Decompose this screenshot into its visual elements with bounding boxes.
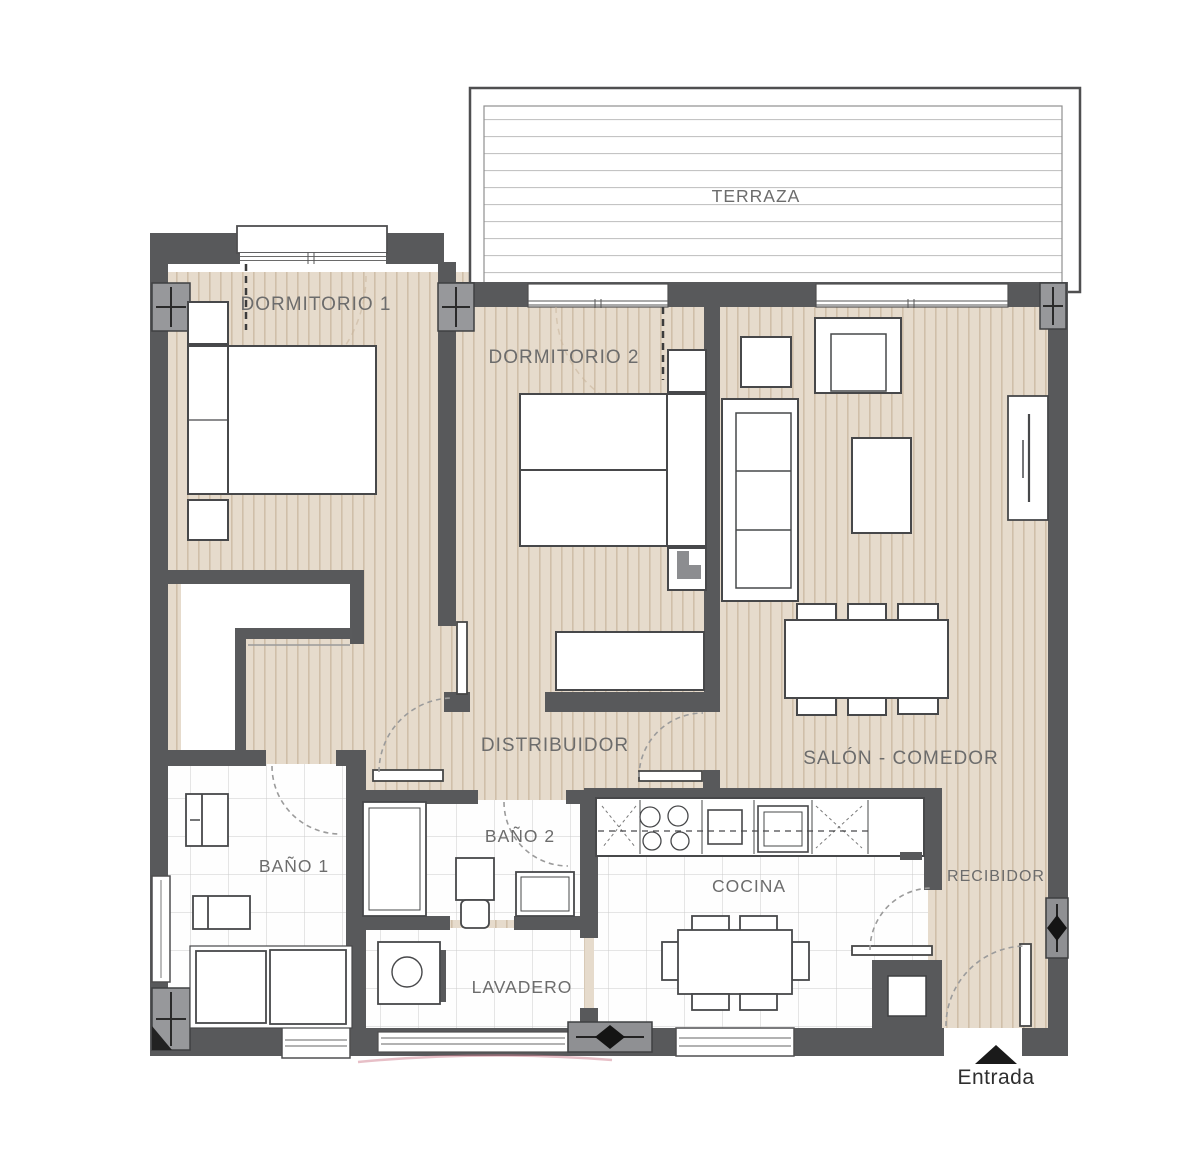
shower	[190, 946, 352, 1028]
sideboard	[556, 632, 704, 690]
room-label-dormitorio-2: DORMITORIO 2	[489, 347, 640, 368]
dining-set	[785, 604, 948, 715]
sink	[193, 896, 250, 929]
nightstand	[188, 302, 228, 344]
double-bed	[520, 394, 706, 546]
nightstand	[668, 350, 706, 392]
door-leaf-dormitorio-1	[373, 770, 443, 781]
room-label-bano-2: BAÑO 2	[485, 825, 555, 846]
window-dormitorio-1	[237, 226, 387, 264]
toilet	[456, 858, 494, 928]
duct-shaft	[888, 976, 926, 1016]
chair	[797, 698, 836, 715]
chair	[898, 698, 938, 714]
window-laundry-bottom	[378, 1032, 568, 1052]
room-label-cocina: COCINA	[712, 876, 786, 896]
room-label-lavadero: LAVADERO	[472, 977, 573, 997]
room-label-terraza: TERRAZA	[712, 186, 801, 206]
nightstand	[668, 548, 706, 590]
chair	[662, 942, 679, 980]
entrance-opening	[944, 1028, 1022, 1058]
window-bathroom-1-side	[152, 876, 170, 982]
chair	[692, 994, 729, 1010]
drain-symbol-icon	[568, 1022, 652, 1052]
kitchen-counter	[596, 798, 924, 860]
door-leaf-dormitorio-2	[457, 622, 467, 694]
toilet	[186, 794, 228, 846]
door-leaf-entrance	[1020, 944, 1031, 1026]
entrance-label: Entrada	[957, 1066, 1034, 1089]
coffee-table	[852, 438, 911, 533]
column-icon	[1040, 283, 1066, 329]
room-label-distribuidor: DISTRIBUIDOR	[481, 735, 629, 756]
side-table	[741, 337, 791, 387]
floor-plan-drawing: TERRAZA DORMITORIO 1 DORMITORIO 2 DISTRI…	[0, 0, 1200, 1151]
scan-artifact	[358, 1055, 612, 1062]
room-label-recibidor: RECIBIDOR	[947, 868, 1045, 885]
door-leaf-kitchen	[852, 946, 932, 955]
laundry-fixtures	[378, 942, 440, 1004]
kitchen-table	[678, 930, 792, 994]
chair	[898, 604, 938, 621]
oven	[758, 806, 808, 852]
sofa	[722, 399, 798, 601]
room-label-bano-1: BAÑO 1	[259, 855, 329, 876]
room-label-dormitorio-1: DORMITORIO 1	[241, 294, 392, 315]
shower	[363, 802, 426, 916]
armchair	[815, 318, 901, 393]
floor-plan-page: TERRAZA DORMITORIO 1 DORMITORIO 2 DISTRI…	[0, 0, 1200, 1151]
kitchen-sink	[708, 810, 742, 844]
chair	[740, 994, 777, 1010]
drain-symbol-icon	[1046, 898, 1068, 958]
window-kitchen-bottom	[676, 1028, 794, 1056]
column-icon	[438, 283, 474, 331]
dining-table	[785, 620, 948, 698]
column-icon	[152, 283, 190, 331]
chair	[792, 942, 809, 980]
chair	[797, 604, 836, 621]
chair	[848, 604, 886, 621]
window-salon	[816, 284, 1008, 308]
column-icon	[152, 988, 190, 1050]
chair	[848, 698, 886, 715]
double-bed	[188, 346, 376, 494]
washing-machine	[378, 942, 440, 1004]
sink	[516, 872, 574, 916]
tv-unit	[1008, 396, 1048, 520]
window-dormitorio-2	[528, 284, 668, 308]
window-bathroom-1-bottom	[282, 1026, 350, 1058]
nightstand	[188, 500, 228, 540]
room-label-salon-comedor: SALÓN - COMEDOR	[803, 747, 999, 769]
door-leaf-salon-passage	[639, 771, 702, 781]
